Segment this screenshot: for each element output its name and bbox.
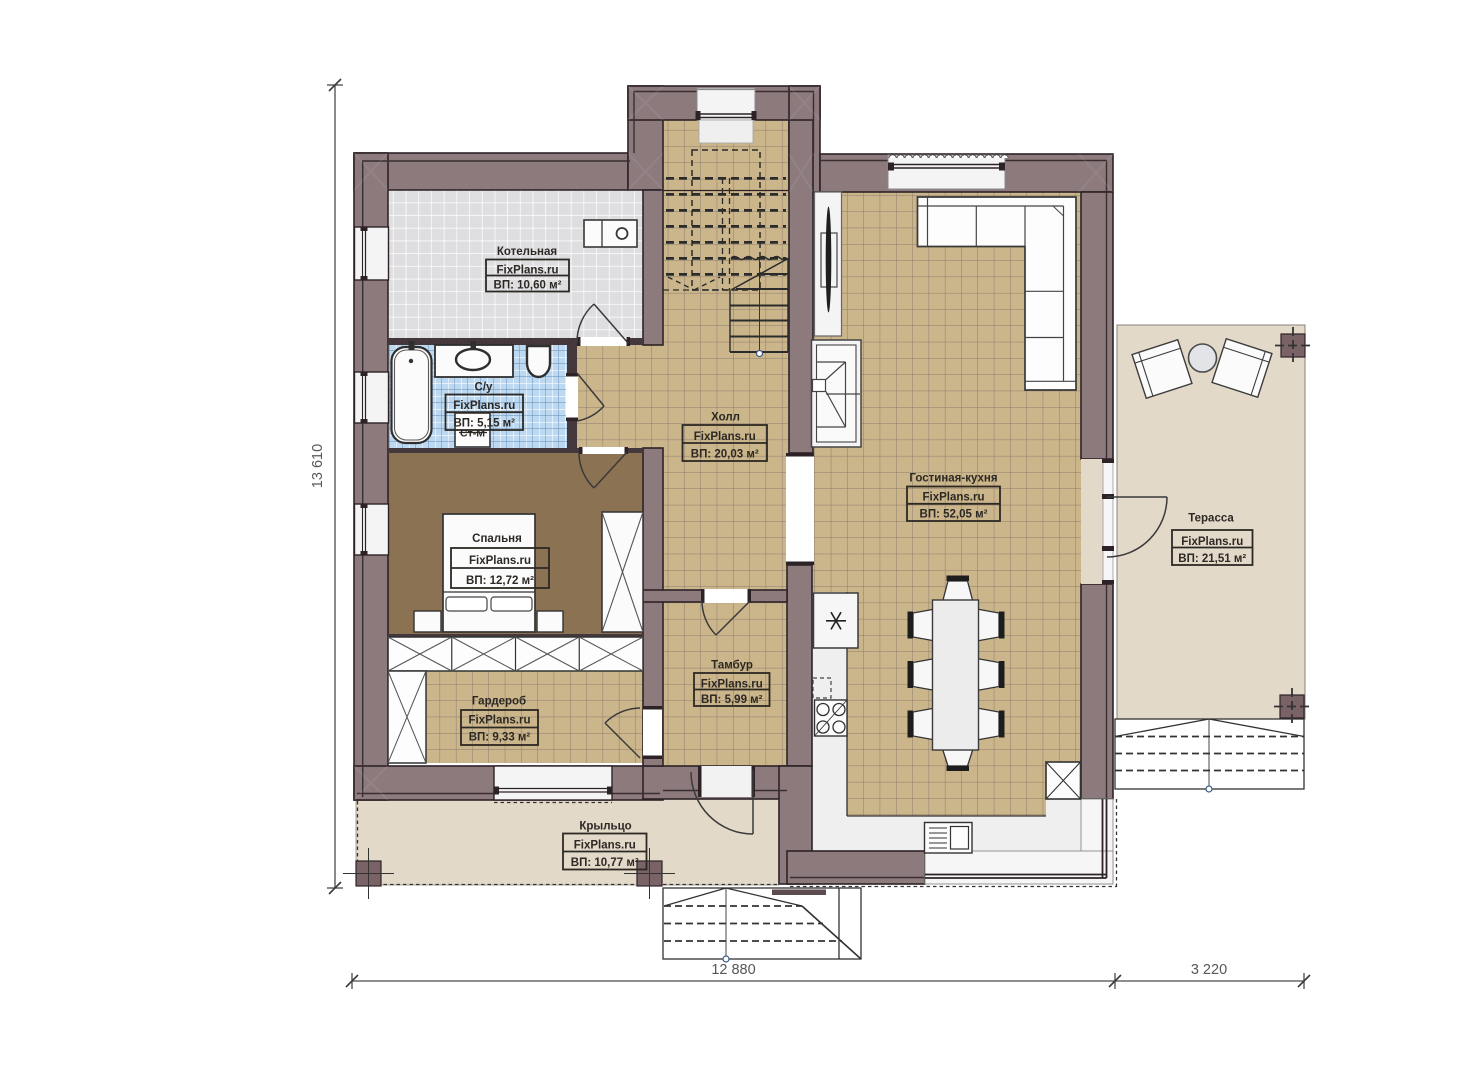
svg-text:Котельная: Котельная	[497, 246, 557, 258]
svg-text:FixPlans.ru: FixPlans.ru	[923, 492, 985, 504]
svg-text:С/у: С/у	[475, 382, 494, 394]
svg-text:ВП: 20,03 м²: ВП: 20,03 м²	[691, 449, 759, 461]
svg-text:ВП: 21,51 м²: ВП: 21,51 м²	[1178, 553, 1246, 565]
svg-text:Гостиная-кухня: Гостиная-кухня	[909, 473, 997, 485]
svg-text:Тамбур: Тамбур	[711, 660, 753, 672]
svg-text:ВП: 10,60 м²: ВП: 10,60 м²	[494, 280, 562, 292]
svg-text:3 220: 3 220	[1191, 962, 1227, 978]
svg-text:Холл: Холл	[711, 412, 740, 424]
svg-text:Спальня: Спальня	[472, 533, 522, 545]
svg-text:13 610: 13 610	[310, 444, 326, 488]
svg-text:12 880: 12 880	[711, 962, 755, 978]
svg-text:ВП: 10,77 м²: ВП: 10,77 м²	[571, 857, 639, 869]
svg-text:FixPlans.ru: FixPlans.ru	[574, 840, 636, 852]
svg-text:Гардероб: Гардероб	[472, 696, 526, 708]
svg-text:FixPlans.ru: FixPlans.ru	[469, 555, 531, 567]
svg-text:FixPlans.ru: FixPlans.ru	[497, 265, 559, 277]
svg-text:Крыльцо: Крыльцо	[579, 821, 631, 833]
svg-text:ВП: 9,33 м²: ВП: 9,33 м²	[469, 732, 531, 744]
svg-text:FixPlans.ru: FixPlans.ru	[701, 679, 763, 691]
svg-text:ВП: 5,99 м²: ВП: 5,99 м²	[701, 694, 763, 706]
svg-text:FixPlans.ru: FixPlans.ru	[1181, 536, 1243, 548]
svg-text:ВП: 52,05 м²: ВП: 52,05 м²	[920, 509, 988, 521]
svg-text:Ст-М: Ст-М	[460, 428, 485, 440]
svg-text:FixPlans.ru: FixPlans.ru	[694, 431, 756, 443]
svg-text:FixPlans.ru: FixPlans.ru	[453, 400, 515, 412]
svg-text:ВП: 12,72 м²: ВП: 12,72 м²	[466, 575, 534, 587]
svg-text:Терасса: Терасса	[1188, 513, 1234, 525]
svg-text:FixPlans.ru: FixPlans.ru	[469, 715, 531, 727]
